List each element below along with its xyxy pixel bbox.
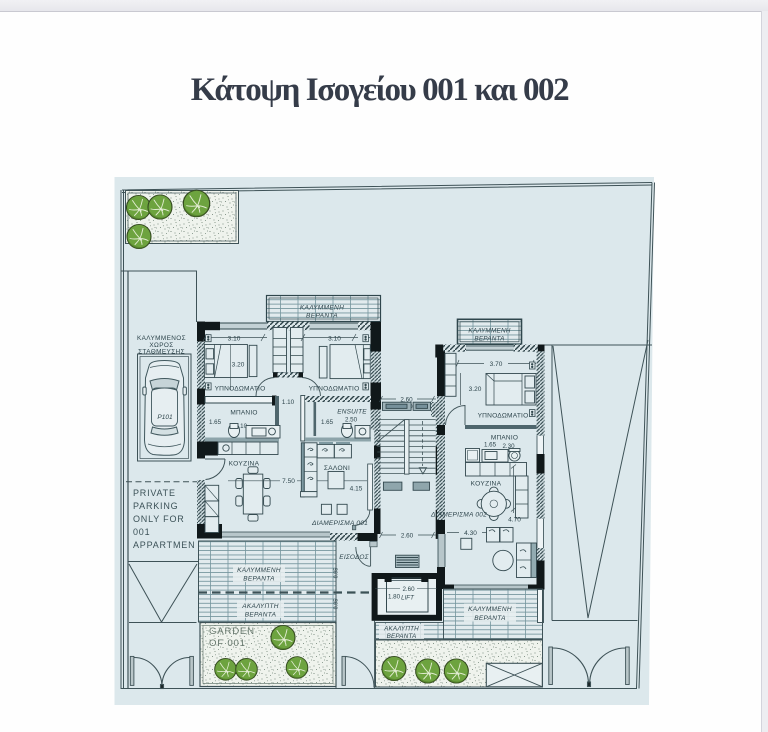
svg-text:4.70: 4.70 [508,517,521,524]
svg-text:ΚΑΛΥΜΜΕΝΗ: ΚΑΛΥΜΜΕΝΗ [237,567,281,574]
svg-text:3.20: 3.20 [469,386,482,393]
svg-text:ΒΕΡΑΝΤΑ: ΒΕΡΑΝΤΑ [306,313,338,320]
svg-text:001: 001 [133,527,150,537]
svg-text:ΔΙΑΜΕΡΙΣΜΑ 001: ΔΙΑΜΕΡΙΣΜΑ 001 [311,520,368,527]
svg-text:ΥΠΝΟΔΩΜΑΤΙΟ: ΥΠΝΟΔΩΜΑΤΙΟ [478,413,529,420]
svg-text:4.15: 4.15 [350,486,363,493]
svg-text:ΒΕΡΑΝΤΑ: ΒΕΡΑΝΤΑ [474,615,505,622]
svg-text:2.60: 2.60 [402,586,415,593]
svg-text:GARDEN: GARDEN [209,626,255,637]
svg-text:OF 001: OF 001 [209,638,246,649]
svg-text:ΚΑΛΥΜΜΕΝΗ: ΚΑΛΥΜΜΕΝΗ [468,328,510,335]
svg-text:ENSUITE: ENSUITE [337,409,367,416]
svg-text:ΔΙΑΜΕΡΙΣΜΑ 002: ΔΙΑΜΕΡΙΣΜΑ 002 [430,512,487,519]
svg-text:PRIVATE: PRIVATE [133,488,176,498]
svg-text:ΑΚΑΛΥΠΤΗ: ΑΚΑΛΥΠΤΗ [383,626,419,633]
svg-text:ΜΠΑΝΙΟ: ΜΠΑΝΙΟ [230,410,257,417]
svg-text:1.80: 1.80 [388,594,401,601]
svg-text:3.20: 3.20 [232,362,245,369]
svg-text:1.65: 1.65 [321,419,334,426]
svg-text:ΕΙΣΟΔΟΣ: ΕΙΣΟΔΟΣ [339,554,369,561]
svg-text:LIFT: LIFT [401,595,415,602]
svg-text:ΒΕΡΑΝΤΑ: ΒΕΡΑΝΤΑ [474,336,504,343]
svg-text:ΚΟΥΖΙΝΑ: ΚΟΥΖΙΝΑ [471,481,502,488]
svg-text:APPARTMEN: APPARTMEN [133,540,195,550]
svg-text:ΚΑΛΥΜΜΕΝΗ: ΚΑΛΥΜΜΕΝΗ [468,606,512,613]
svg-text:ΥΠΝΟΔΩΜΑΤΙΟ: ΥΠΝΟΔΩΜΑΤΙΟ [309,386,360,393]
svg-text:PARKING: PARKING [133,501,178,511]
svg-text:ΚΑΛΥΜΜΕΝΗ: ΚΑΛΥΜΜΕΝΗ [300,305,344,312]
svg-text:3.10: 3.10 [228,336,241,343]
svg-text:ΒΕΡΑΝΤΑ: ΒΕΡΑΝΤΑ [387,633,417,640]
svg-text:3.10: 3.10 [328,336,341,343]
svg-text:ΑΚΑΛΥΠΤΗ: ΑΚΑΛΥΠΤΗ [241,603,279,610]
svg-text:2.60: 2.60 [401,533,414,540]
svg-text:ΒΕΡΑΝΤΑ: ΒΕΡΑΝΤΑ [245,612,276,619]
svg-text:1.10: 1.10 [282,399,295,406]
svg-text:ΒΕΡΑΝΤΑ: ΒΕΡΑΝΤΑ [243,576,274,583]
svg-text:0.95: 0.95 [334,599,340,610]
svg-text:0.95: 0.95 [334,568,340,579]
svg-text:7.50: 7.50 [282,478,295,485]
svg-text:3.70: 3.70 [490,361,503,368]
svg-text:4.30: 4.30 [464,530,477,537]
svg-text:ΜΠΑΝΙΟ: ΜΠΑΝΙΟ [491,435,518,442]
svg-text:2.50: 2.50 [345,417,358,424]
svg-text:ONLY FOR: ONLY FOR [133,514,185,524]
svg-text:P101: P101 [157,414,173,421]
svg-text:1.65: 1.65 [209,419,222,426]
svg-text:1.65: 1.65 [484,442,497,449]
svg-text:ΣΑΛΟΝΙ: ΣΑΛΟΝΙ [324,465,350,472]
